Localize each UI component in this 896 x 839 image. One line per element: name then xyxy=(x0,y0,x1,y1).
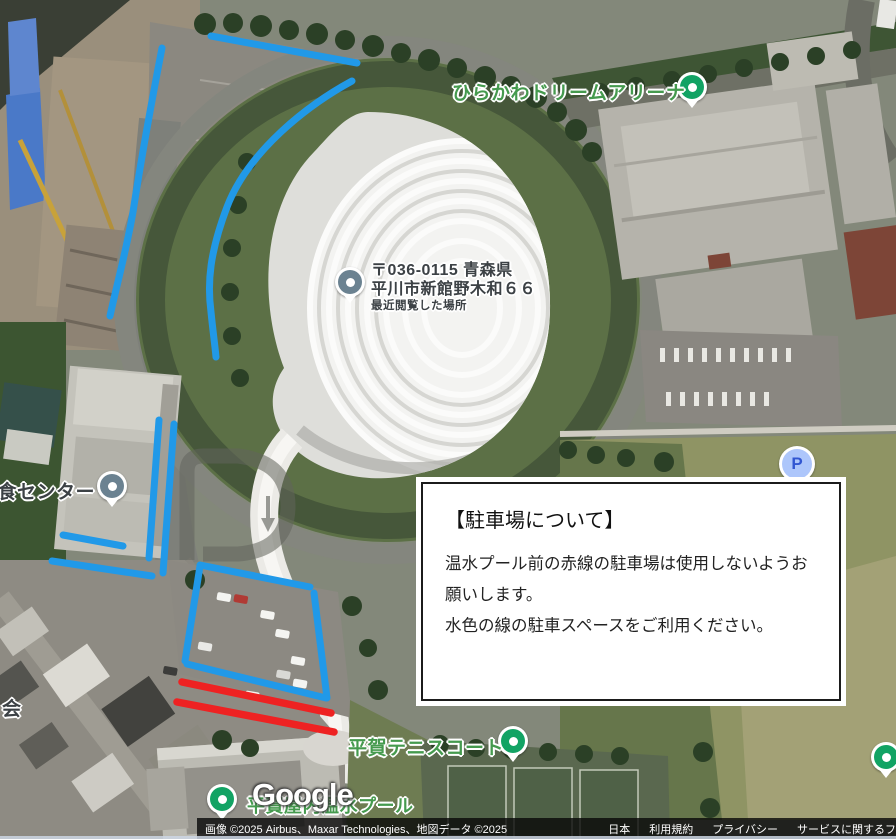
link-feedback[interactable]: サービスに関するフ xyxy=(797,821,896,837)
info-box-body-1: 温水プール前の赤線の駐車場は使用しないようお願いします。 xyxy=(445,549,817,611)
annotation-lines xyxy=(0,0,896,839)
place-label-arena[interactable]: ひらかわドリームアリーナ xyxy=(452,78,685,105)
link-region[interactable]: 日本 xyxy=(608,821,630,837)
parking-info-box: 【駐車場について】 温水プール前の赤線の駐車場は使用しないようお願いします。 水… xyxy=(416,477,846,706)
place-marker-address[interactable] xyxy=(335,267,365,297)
parking-info-frame: 【駐車場について】 温水プール前の赤線の駐車場は使用しないようお願いします。 水… xyxy=(421,482,841,701)
address-line1: 〒036-0115 青森県 xyxy=(371,261,536,280)
place-marker-east-field[interactable] xyxy=(871,742,896,772)
parking-letter: P xyxy=(782,449,812,479)
place-label-tennis[interactable]: 平賀テニスコート xyxy=(348,733,504,760)
imagery-credit: 画像 ©2025 Airbus、Maxar Technologies、地図データ… xyxy=(205,821,507,837)
link-privacy[interactable]: プライバシー xyxy=(712,821,778,837)
link-terms[interactable]: 利用規約 xyxy=(649,821,693,837)
info-box-body-2: 水色の線の駐車スペースをご利用ください。 xyxy=(445,611,817,642)
attribution-links: 日本 利用規約 プライバシー サービスに関するフ xyxy=(608,821,896,837)
google-watermark: Google xyxy=(252,777,353,813)
place-marker-pool[interactable] xyxy=(207,784,237,814)
address-label[interactable]: 〒036-0115 青森県 平川市新館野木和６６ 最近閲覧した場所 xyxy=(371,261,536,313)
address-line2: 平川市新館野木和６６ xyxy=(371,280,536,299)
red-parking-lines xyxy=(177,682,334,732)
info-box-title: 【駐車場について】 xyxy=(445,504,817,533)
place-label-lunch-center[interactable]: 給食センター xyxy=(0,477,95,504)
place-label-partial[interactable]: 会 xyxy=(2,694,22,721)
place-marker-lunch-center[interactable] xyxy=(97,471,127,501)
map-canvas[interactable]: P ひらかわドリームアリーナ 〒036-0115 青森県 平川市新館野木和６６ … xyxy=(0,0,896,839)
blue-parking-lines xyxy=(52,36,357,698)
address-note: 最近閲覧した場所 xyxy=(371,299,536,313)
